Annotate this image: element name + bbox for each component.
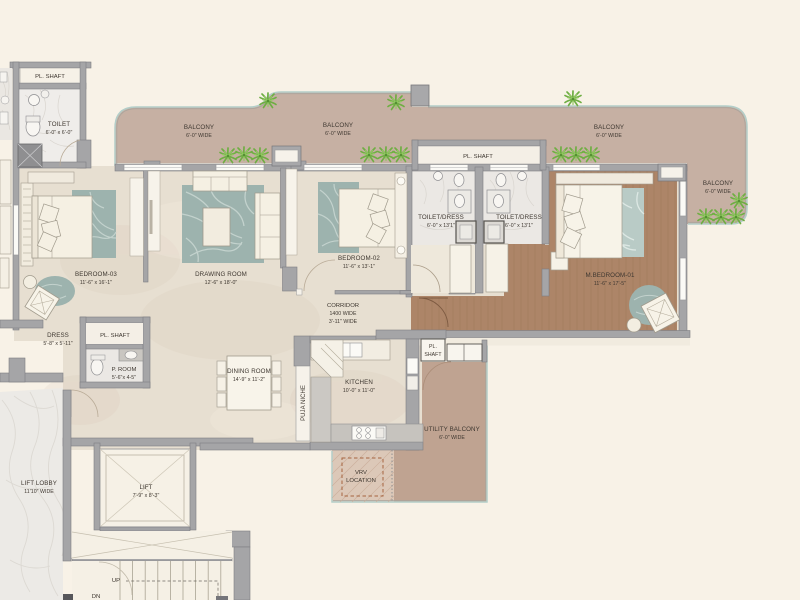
svg-text:BEDROOM-03: BEDROOM-03 [75,271,117,278]
svg-text:DRESS: DRESS [47,332,69,339]
svg-text:TOILET/DRESS: TOILET/DRESS [418,214,464,221]
svg-text:LIFT: LIFT [139,484,152,491]
svg-text:11'-6" x 17'-5": 11'-6" x 17'-5" [594,281,626,287]
svg-text:UP: UP [112,578,120,584]
svg-text:BALCONY: BALCONY [594,124,624,131]
svg-text:6'-0" WIDE: 6'-0" WIDE [705,189,731,195]
svg-text:10'-0" x 11'-0": 10'-0" x 11'-0" [343,388,375,394]
svg-text:5'-8" x 5'-11": 5'-8" x 5'-11" [43,341,72,347]
svg-text:14'-9" x 11'-2": 14'-9" x 11'-2" [233,377,265,383]
svg-text:BALCONY: BALCONY [323,122,353,129]
svg-text:1400 WIDE: 1400 WIDE [330,311,357,317]
svg-text:LOCATION: LOCATION [346,478,376,484]
svg-text:CORRIDOR: CORRIDOR [327,303,359,309]
svg-text:M.BEDROOM-01: M.BEDROOM-01 [586,272,635,279]
svg-text:LIFT LOBBY: LIFT LOBBY [21,480,57,487]
svg-text:6'-0" x 13'1": 6'-0" x 13'1" [427,223,455,229]
svg-text:DINING ROOM: DINING ROOM [227,368,271,375]
svg-text:DRAWING ROOM: DRAWING ROOM [195,271,247,278]
svg-text:SHAFT: SHAFT [424,352,442,358]
svg-text:PL.: PL. [429,344,437,350]
svg-text:6'-0" WIDE: 6'-0" WIDE [439,435,465,441]
svg-text:6'-0" x 13'1": 6'-0" x 13'1" [505,223,533,229]
svg-text:6'-0" WIDE: 6'-0" WIDE [325,131,351,137]
svg-text:7'-9" x 8'-3": 7'-9" x 8'-3" [133,493,160,499]
svg-text:12'-6" x 18'-0": 12'-6" x 18'-0" [205,280,238,286]
svg-text:6'-0" WIDE: 6'-0" WIDE [186,133,212,139]
svg-text:3'-11" WIDE: 3'-11" WIDE [329,319,358,325]
svg-text:BALCONY: BALCONY [703,180,733,187]
svg-text:PUJA NICHE: PUJA NICHE [301,385,307,421]
svg-text:11'-6" x 16'-1": 11'-6" x 16'-1" [80,280,112,286]
svg-text:TOILET/DRESS: TOILET/DRESS [496,214,542,221]
svg-text:TOILET: TOILET [48,121,70,128]
svg-text:VRV: VRV [355,470,367,476]
svg-text:DN: DN [92,594,101,600]
svg-text:PL. SHAFT: PL. SHAFT [463,154,493,160]
svg-text:BALCONY: BALCONY [184,124,214,131]
svg-text:UTILITY BALCONY: UTILITY BALCONY [424,426,480,433]
svg-text:PL. SHAFT: PL. SHAFT [35,74,65,80]
svg-text:KITCHEN: KITCHEN [345,379,373,386]
svg-text:6'-0" x 6'-0": 6'-0" x 6'-0" [46,130,73,136]
svg-text:6'-0" WIDE: 6'-0" WIDE [596,133,622,139]
svg-text:5'-6"x 4-5": 5'-6"x 4-5" [112,375,136,381]
svg-text:11'10" WIDE: 11'10" WIDE [24,489,54,495]
svg-text:11'-6" x 13'-1": 11'-6" x 13'-1" [343,264,375,270]
svg-text:PL. SHAFT: PL. SHAFT [100,333,130,339]
svg-text:P. ROOM: P. ROOM [112,367,137,373]
svg-text:BEDROOM-02: BEDROOM-02 [338,255,380,262]
